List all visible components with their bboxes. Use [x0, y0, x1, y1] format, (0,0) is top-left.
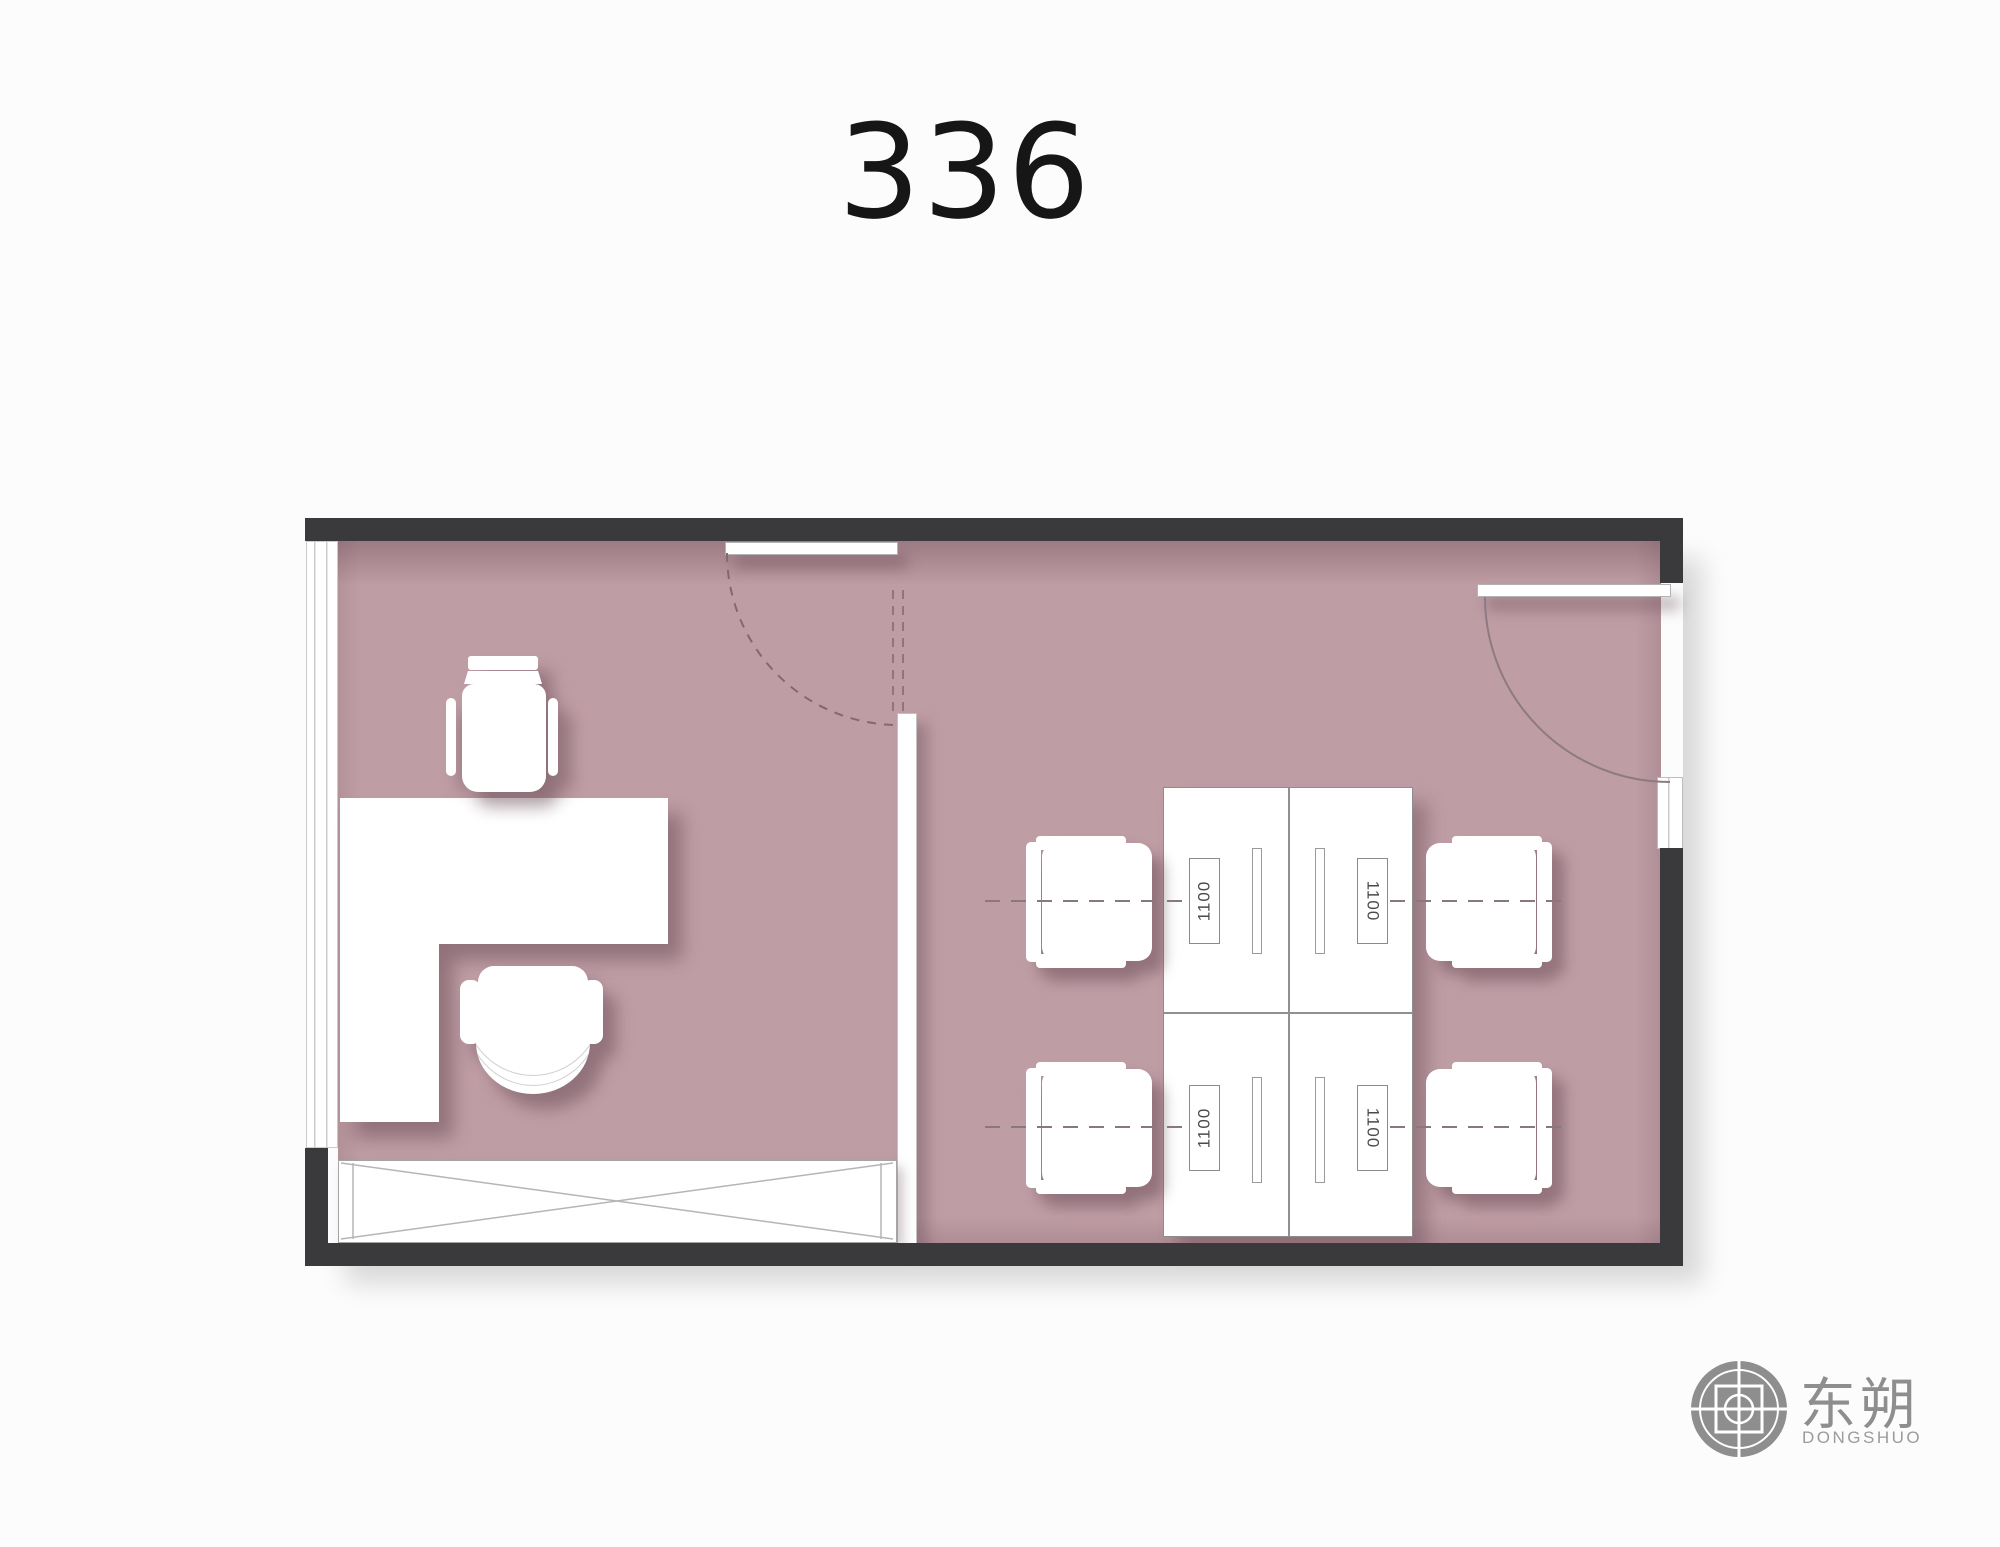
- chair-backrest: [1537, 842, 1552, 962]
- chair-seat: [1042, 843, 1152, 961]
- chair-backrest: [464, 671, 542, 684]
- chair-backrest: [1026, 1068, 1041, 1188]
- executive-chair: [446, 656, 558, 796]
- chair-armrest-right: [548, 698, 558, 776]
- workstation-dim-label: 1100: [1189, 858, 1220, 944]
- desk-screen-bar: [1315, 1077, 1325, 1183]
- office-chair: [1424, 836, 1552, 968]
- wall-right-lower: [1660, 848, 1683, 1243]
- office-chair: [1424, 1062, 1552, 1194]
- wall-left: [305, 1148, 328, 1243]
- partition-door-leaf: [725, 542, 898, 555]
- desk-screen-bar: [1252, 1077, 1262, 1183]
- chair-armrest-left: [446, 698, 456, 776]
- desk-top: [340, 798, 668, 944]
- workstation-dim-label: 1100: [1357, 1085, 1388, 1171]
- chair-seat: [1426, 843, 1536, 961]
- desk-return: [340, 944, 439, 1122]
- right-window-panel: [1657, 777, 1683, 849]
- workstation-dim-label: 1100: [1189, 1085, 1220, 1171]
- wall-top: [305, 518, 1683, 541]
- office-chair: [1026, 1062, 1154, 1194]
- desk-screen-bar: [1252, 848, 1262, 954]
- chair-seat: [1042, 1069, 1152, 1187]
- partition-wall: [897, 713, 917, 1244]
- credenza-cross-icon: [339, 1161, 895, 1241]
- office-chair: [1026, 836, 1154, 968]
- left-window: [306, 541, 338, 1148]
- chair-backrest: [1026, 842, 1041, 962]
- unit-number-title: 336: [0, 96, 1930, 248]
- chair-backrest: [476, 1006, 590, 1094]
- workstation-dim-label: 1100: [1357, 858, 1388, 944]
- chair-headrest: [468, 656, 538, 670]
- entry-door-leaf: [1477, 584, 1671, 597]
- table-divider-horizontal: [1164, 1012, 1412, 1014]
- wall-bottom: [305, 1243, 1683, 1266]
- chair-seat: [1426, 1069, 1536, 1187]
- wall-right-upper: [1660, 541, 1683, 583]
- chair-seat: [462, 684, 546, 792]
- guest-chair: [458, 962, 608, 1098]
- chair-backrest: [1537, 1068, 1552, 1188]
- brand-logo: 东朔 DONGSHUO: [1690, 1360, 1980, 1470]
- desk-screen-bar: [1315, 848, 1325, 954]
- compass-emblem-icon: [1690, 1360, 1788, 1458]
- brand-name-english: DONGSHUO: [1802, 1428, 1922, 1448]
- credenza-cabinet: [338, 1160, 897, 1243]
